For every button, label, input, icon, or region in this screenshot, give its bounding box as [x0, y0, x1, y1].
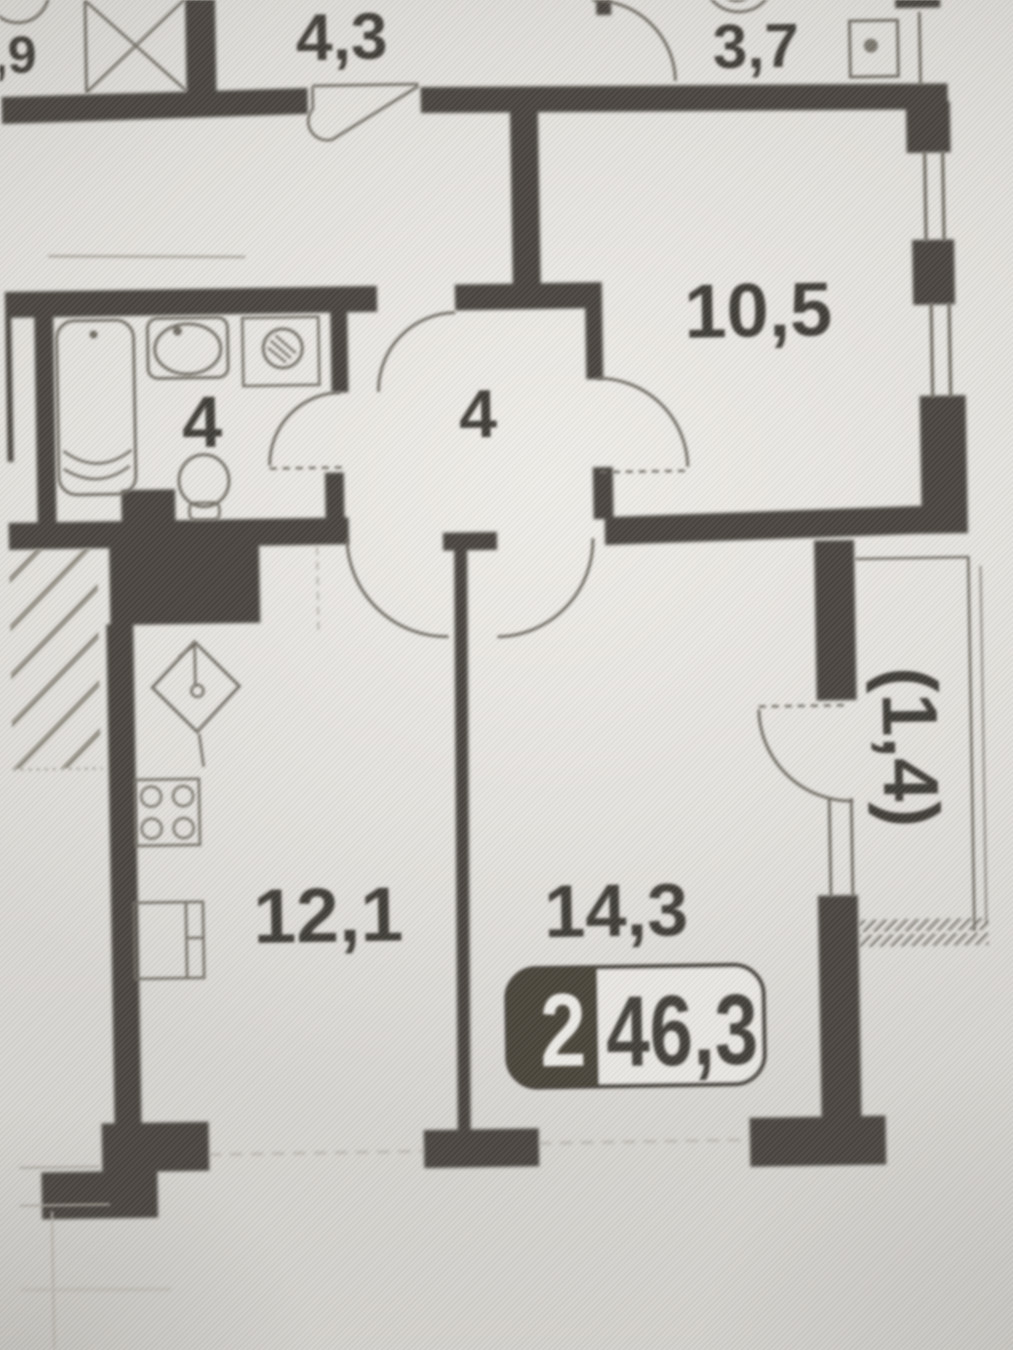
svg-text:3,7: 3,7	[712, 12, 799, 82]
svg-text:4: 4	[458, 376, 497, 453]
svg-text:14,3: 14,3	[543, 868, 688, 953]
svg-text:2: 2	[539, 972, 587, 1089]
svg-text:4: 4	[181, 382, 222, 463]
svg-text:4,3: 4,3	[295, 0, 388, 74]
svg-text:(1,4): (1,4)	[865, 666, 956, 828]
svg-text:10,5: 10,5	[684, 267, 833, 354]
svg-text:12,1: 12,1	[253, 871, 404, 959]
svg-text:,9: ,9	[0, 26, 37, 85]
svg-text:46,3: 46,3	[605, 974, 759, 1088]
